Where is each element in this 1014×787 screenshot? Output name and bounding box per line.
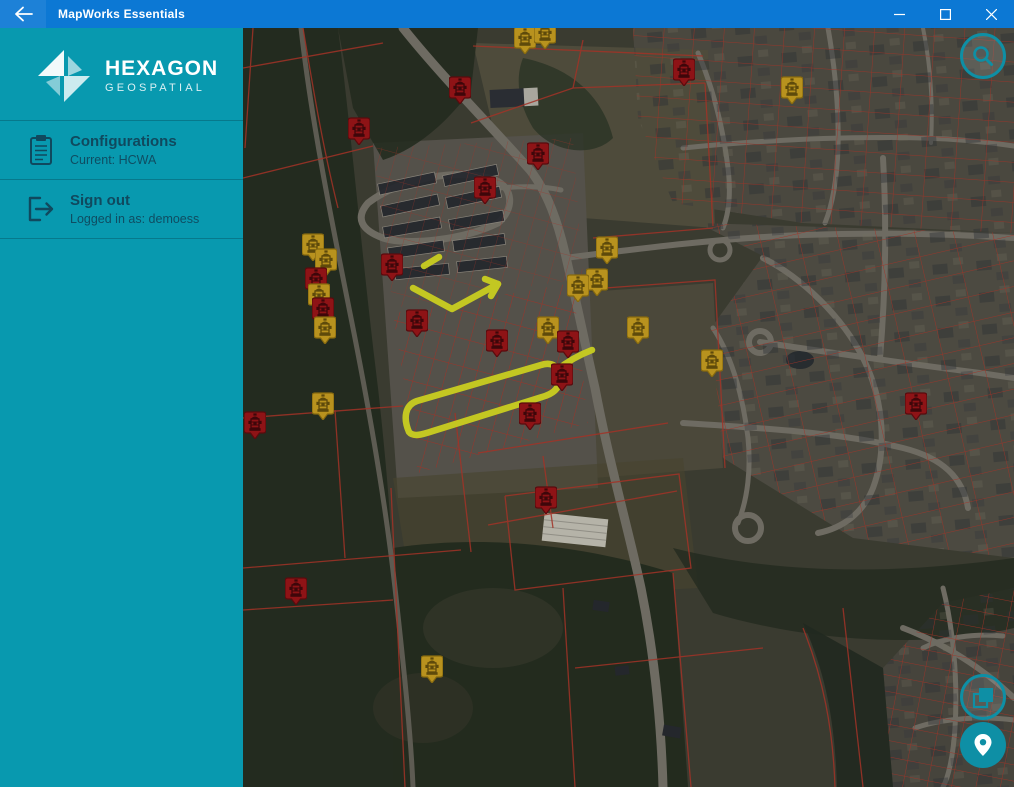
configurations-label: Configurations <box>70 133 177 150</box>
sign-out-icon <box>26 194 56 224</box>
back-button[interactable] <box>0 0 46 28</box>
search-button[interactable] <box>960 33 1006 79</box>
configurations-current: Current: HCWA <box>70 153 177 167</box>
signout-user: Logged in as: demoess <box>70 212 199 226</box>
basemap-button[interactable] <box>960 674 1006 720</box>
minimize-button[interactable] <box>876 0 922 28</box>
maximize-button[interactable] <box>922 0 968 28</box>
signout-text: Sign out Logged in as: demoess <box>70 192 199 226</box>
search-icon <box>971 44 995 68</box>
app-window: MapWorks Essentials HEXAGON GEOSP <box>0 0 1014 787</box>
close-button[interactable] <box>968 0 1014 28</box>
map-pin-icon <box>970 732 996 758</box>
brand-logo: HEXAGON GEOSPATIAL <box>0 28 243 120</box>
brand-text: HEXAGON GEOSPATIAL <box>105 58 218 94</box>
brand-subname: GEOSPATIAL <box>105 82 218 94</box>
sidebar-item-configurations[interactable]: Configurations Current: HCWA <box>0 121 243 180</box>
maximize-icon <box>940 9 951 20</box>
sidebar-item-signout[interactable]: Sign out Logged in as: demoess <box>0 180 243 239</box>
clipboard-icon <box>26 134 56 166</box>
close-icon <box>986 9 997 20</box>
configurations-text: Configurations Current: HCWA <box>70 133 177 167</box>
layers-icon <box>969 683 997 711</box>
window-controls <box>876 0 1014 28</box>
app-title: MapWorks Essentials <box>58 7 185 21</box>
map-container <box>243 28 1014 787</box>
back-arrow-icon <box>13 6 33 22</box>
sidebar: HEXAGON GEOSPATIAL Configurations Curren… <box>0 28 243 787</box>
brand-name: HEXAGON <box>105 58 218 80</box>
locate-button[interactable] <box>960 722 1006 768</box>
titlebar: MapWorks Essentials <box>0 0 1014 28</box>
signout-label: Sign out <box>70 192 199 209</box>
hexagon-geospatial-logo-icon <box>36 48 92 104</box>
map-canvas[interactable] <box>243 28 1014 787</box>
minimize-icon <box>894 9 905 20</box>
sidebar-menu: Configurations Current: HCWA Sign out Lo… <box>0 120 243 239</box>
